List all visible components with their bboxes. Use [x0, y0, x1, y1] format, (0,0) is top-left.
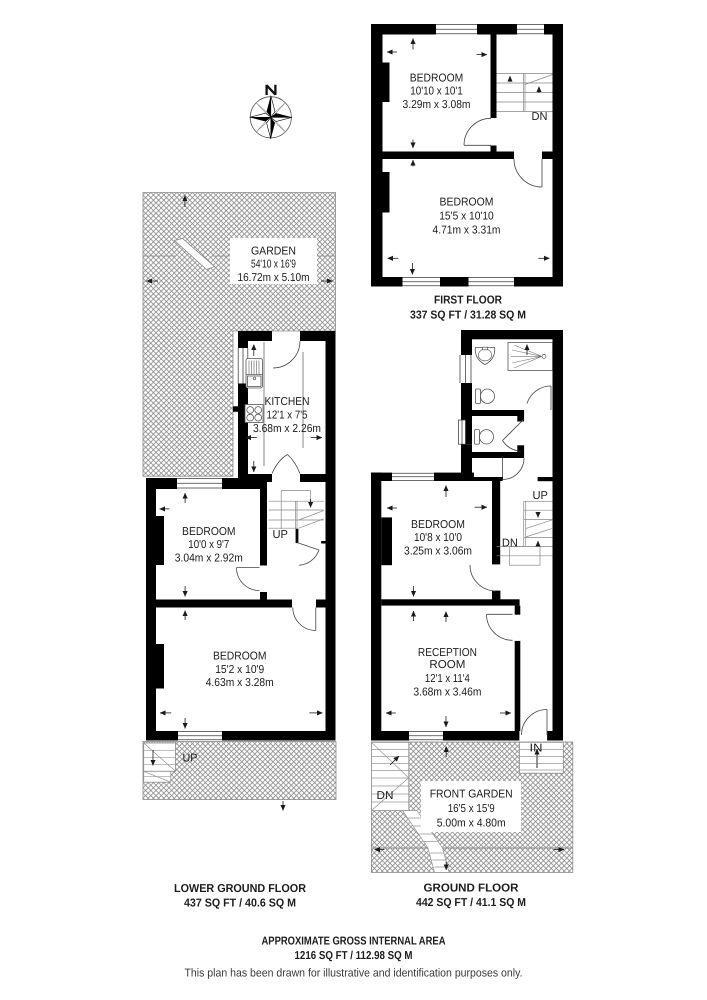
- svg-text:1216 SQ FT / 112.98 SQ M: 1216 SQ FT / 112.98 SQ M: [295, 950, 413, 962]
- svg-text:BEDROOM: BEDROOM: [182, 526, 236, 538]
- svg-text:ROOM: ROOM: [429, 659, 465, 671]
- svg-text:16'5 x 15'9: 16'5 x 15'9: [448, 803, 495, 815]
- svg-text:4.63m x 3.28m: 4.63m x 3.28m: [206, 677, 274, 689]
- svg-text:15'5 x 10'10: 15'5 x 10'10: [439, 211, 494, 223]
- svg-text:DN: DN: [502, 537, 518, 549]
- svg-text:3.04m x 2.92m: 3.04m x 2.92m: [175, 553, 243, 565]
- svg-text:337 SQ FT / 31.28 SQ M: 337 SQ FT / 31.28 SQ M: [410, 310, 526, 322]
- svg-text:BEDROOM: BEDROOM: [410, 73, 464, 85]
- svg-text:BEDROOM: BEDROOM: [411, 519, 465, 531]
- svg-text:KITCHEN: KITCHEN: [265, 396, 310, 408]
- svg-text:12'1 x 11'4: 12'1 x 11'4: [425, 673, 470, 685]
- svg-text:FIRST FLOOR: FIRST FLOOR: [434, 295, 503, 307]
- svg-text:GROUND FLOOR: GROUND FLOOR: [424, 883, 520, 895]
- svg-text:15'2 x 10'9: 15'2 x 10'9: [215, 664, 264, 676]
- svg-text:3.29m x 3.08m: 3.29m x 3.08m: [403, 99, 471, 111]
- svg-text:UP: UP: [183, 753, 198, 765]
- svg-text:IN: IN: [530, 743, 543, 755]
- svg-text:UP: UP: [533, 490, 549, 502]
- svg-text:5.00m x 4.80m: 5.00m x 4.80m: [437, 818, 506, 830]
- svg-text:BEDROOM: BEDROOM: [440, 197, 494, 209]
- svg-text:UP: UP: [273, 529, 289, 541]
- svg-text:3.68m x 3.46m: 3.68m x 3.46m: [413, 687, 481, 699]
- svg-text:This plan has been drawn for i: This plan has been drawn for illustrativ…: [185, 968, 523, 980]
- svg-text:12'1 x 7'5: 12'1 x 7'5: [267, 410, 308, 422]
- svg-text:LOWER GROUND FLOOR: LOWER GROUND FLOOR: [174, 883, 307, 895]
- svg-text:3.25m x 3.06m: 3.25m x 3.06m: [404, 546, 472, 558]
- svg-text:DN: DN: [377, 790, 394, 802]
- svg-text:10'0 x 9'7: 10'0 x 9'7: [188, 539, 229, 551]
- svg-text:APPROXIMATE GROSS INTERNAL ARE: APPROXIMATE GROSS INTERNAL AREA: [262, 936, 446, 948]
- svg-text:FRONT GARDEN: FRONT GARDEN: [430, 789, 513, 801]
- svg-text:442 SQ FT / 41.1 SQ M: 442 SQ FT / 41.1 SQ M: [416, 897, 526, 909]
- svg-text:3.68m x 2.26m: 3.68m x 2.26m: [253, 423, 321, 435]
- svg-text:BEDROOM: BEDROOM: [213, 651, 267, 663]
- svg-text:DN: DN: [532, 111, 548, 123]
- svg-text:RECEPTION: RECEPTION: [418, 647, 477, 659]
- svg-text:437 SQ FT / 40.6 SQ M: 437 SQ FT / 40.6 SQ M: [184, 898, 296, 910]
- svg-text:10'10 x 10'1: 10'10 x 10'1: [410, 86, 463, 98]
- svg-text:54'10 x 16'9: 54'10 x 16'9: [251, 259, 296, 271]
- svg-text:4.71m x 3.31m: 4.71m x 3.31m: [433, 225, 501, 237]
- svg-text:GARDEN: GARDEN: [251, 246, 296, 258]
- svg-text:16.72m x 5.10m: 16.72m x 5.10m: [238, 272, 310, 284]
- svg-text:10'8 x 10'0: 10'8 x 10'0: [414, 532, 462, 544]
